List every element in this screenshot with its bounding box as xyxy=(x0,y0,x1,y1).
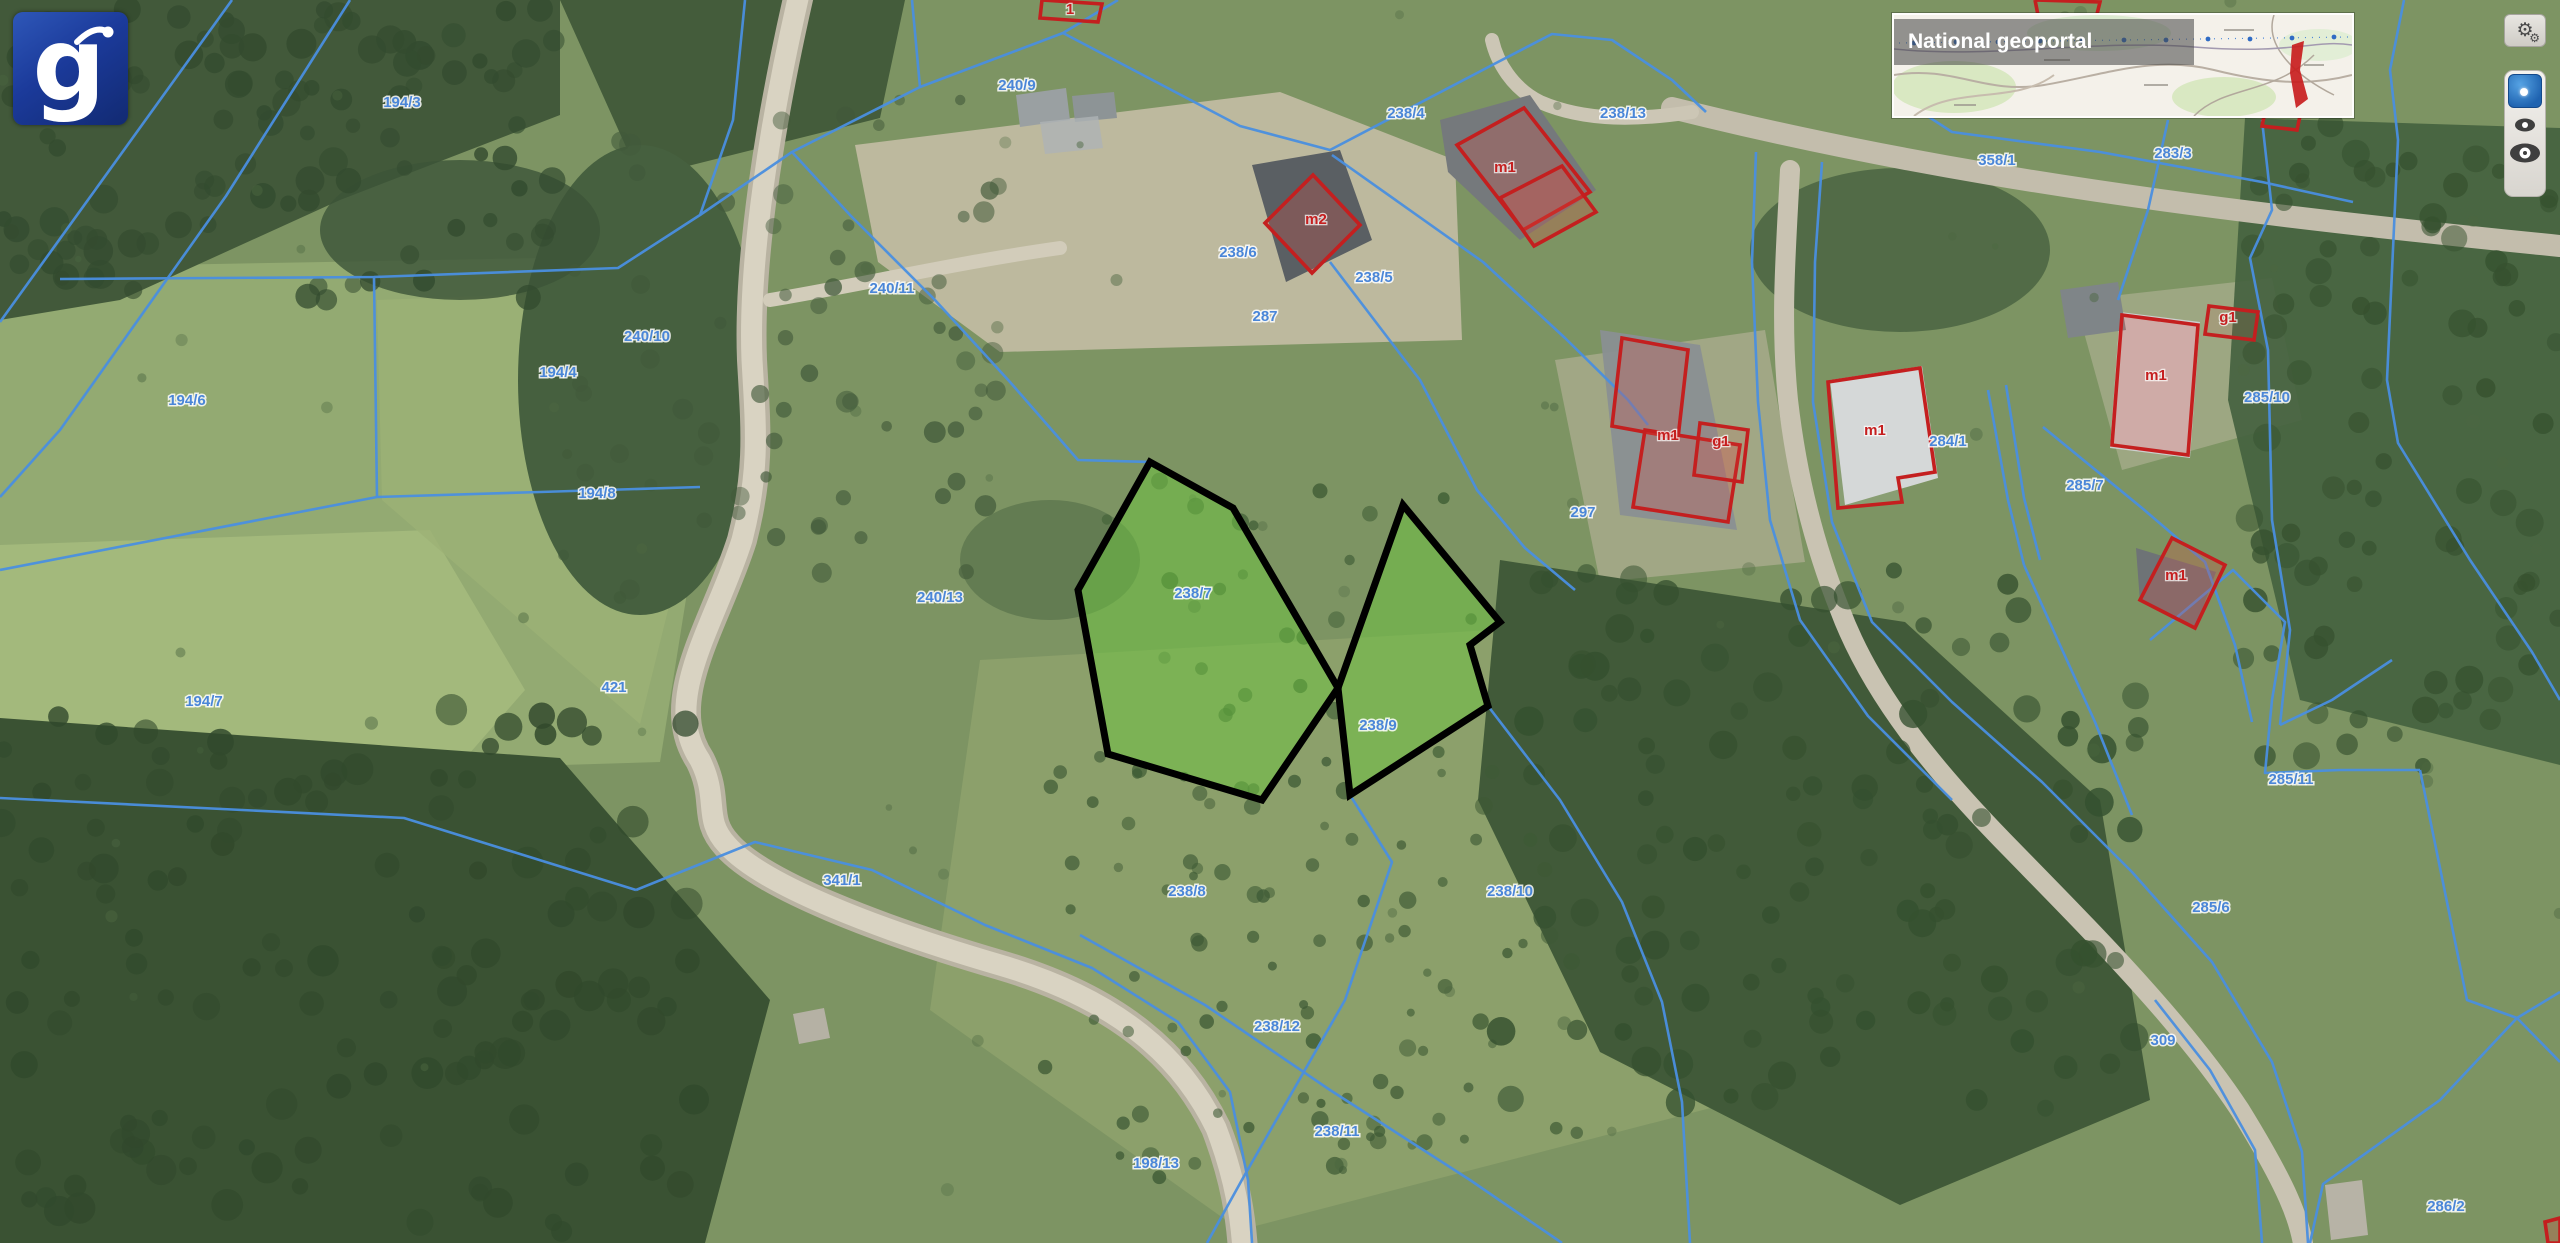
parcel-label: 238/4 xyxy=(1387,105,1425,122)
parcel-label: 286/2 xyxy=(2427,1198,2465,1215)
building-label: m1 xyxy=(1494,159,1516,176)
visibility-small-button[interactable] xyxy=(2513,117,2537,133)
building-label: m1 xyxy=(1864,422,1886,439)
overview-title: National geoportal xyxy=(1894,19,2194,65)
view-tool-panel xyxy=(2504,70,2546,197)
parcel-label: 309 xyxy=(2150,1032,2175,1049)
parcel-label: 194/8 xyxy=(578,485,616,502)
visibility-large-button[interactable] xyxy=(2508,142,2542,164)
parcel-label: 358/1 xyxy=(1978,152,2016,169)
settings-button[interactable]: ⚙ ⚙ xyxy=(2504,14,2546,47)
building-label: m1 xyxy=(2145,367,2167,384)
parcel-label: 238/13 xyxy=(1600,105,1646,122)
parcel-label: 194/3 xyxy=(383,94,421,111)
building-label: m2 xyxy=(1305,211,1327,228)
eye-large-icon xyxy=(2508,142,2542,164)
parcel-label: 194/6 xyxy=(168,392,206,409)
building-label: m1 xyxy=(1657,427,1679,444)
parcel-label: 240/10 xyxy=(624,328,670,345)
overview-map[interactable]: National geoportal xyxy=(1892,13,2354,118)
building-label: g1 xyxy=(1712,433,1730,450)
parcel-label: 238/11 xyxy=(1314,1123,1359,1140)
parcel-label: 285/11 xyxy=(2268,771,2313,788)
dot-icon xyxy=(2520,88,2528,96)
geoportal-logo-icon: g xyxy=(13,12,128,125)
building-label: 1 xyxy=(1066,1,1074,18)
geoportal-logo[interactable]: g xyxy=(13,12,128,125)
parcel-label: 285/7 xyxy=(2066,477,2104,494)
parcel-label: 194/4 xyxy=(539,364,577,381)
parcel-label: 421 xyxy=(601,679,626,696)
parcel-label: 238/12 xyxy=(1254,1018,1300,1035)
parcel-label: 287 xyxy=(1252,308,1277,325)
parcel-label: 240/13 xyxy=(917,589,963,606)
parcel-label: 341/1 xyxy=(823,872,861,889)
parcel-label: 238/5 xyxy=(1355,269,1393,286)
map-canvas[interactable]: 238/7238/9194/3240/9238/4238/13358/1283/… xyxy=(0,0,2560,1243)
parcel-label: 198/13 xyxy=(1133,1155,1179,1172)
parcel-label: 238/10 xyxy=(1487,883,1533,900)
parcel-label: 238/6 xyxy=(1219,244,1257,261)
parcel-label: 240/9 xyxy=(998,77,1036,94)
parcel-label: 238/7 xyxy=(1174,585,1212,602)
parcel-label: 285/6 xyxy=(2192,899,2230,916)
parcel-label: 283/3 xyxy=(2154,145,2192,162)
parcel-label: 285/10 xyxy=(2244,389,2290,406)
geoportal-app: 238/7238/9194/3240/9238/4238/13358/1283/… xyxy=(0,0,2560,1243)
marker-tool-button[interactable] xyxy=(2508,74,2542,108)
parcel-label: 297 xyxy=(1570,504,1595,521)
parcel-label: 284/1 xyxy=(1929,433,1967,450)
parcel-label: 238/8 xyxy=(1168,883,1206,900)
parcel-label: 240/11 xyxy=(869,280,914,297)
gear-small-icon: ⚙ xyxy=(2529,31,2540,45)
parcel-label: 194/7 xyxy=(185,693,223,710)
building-label: m1 xyxy=(2165,567,2187,584)
eye-icon xyxy=(2513,117,2537,133)
building-label: g1 xyxy=(2219,309,2237,326)
parcel-label: 238/9 xyxy=(1359,717,1397,734)
